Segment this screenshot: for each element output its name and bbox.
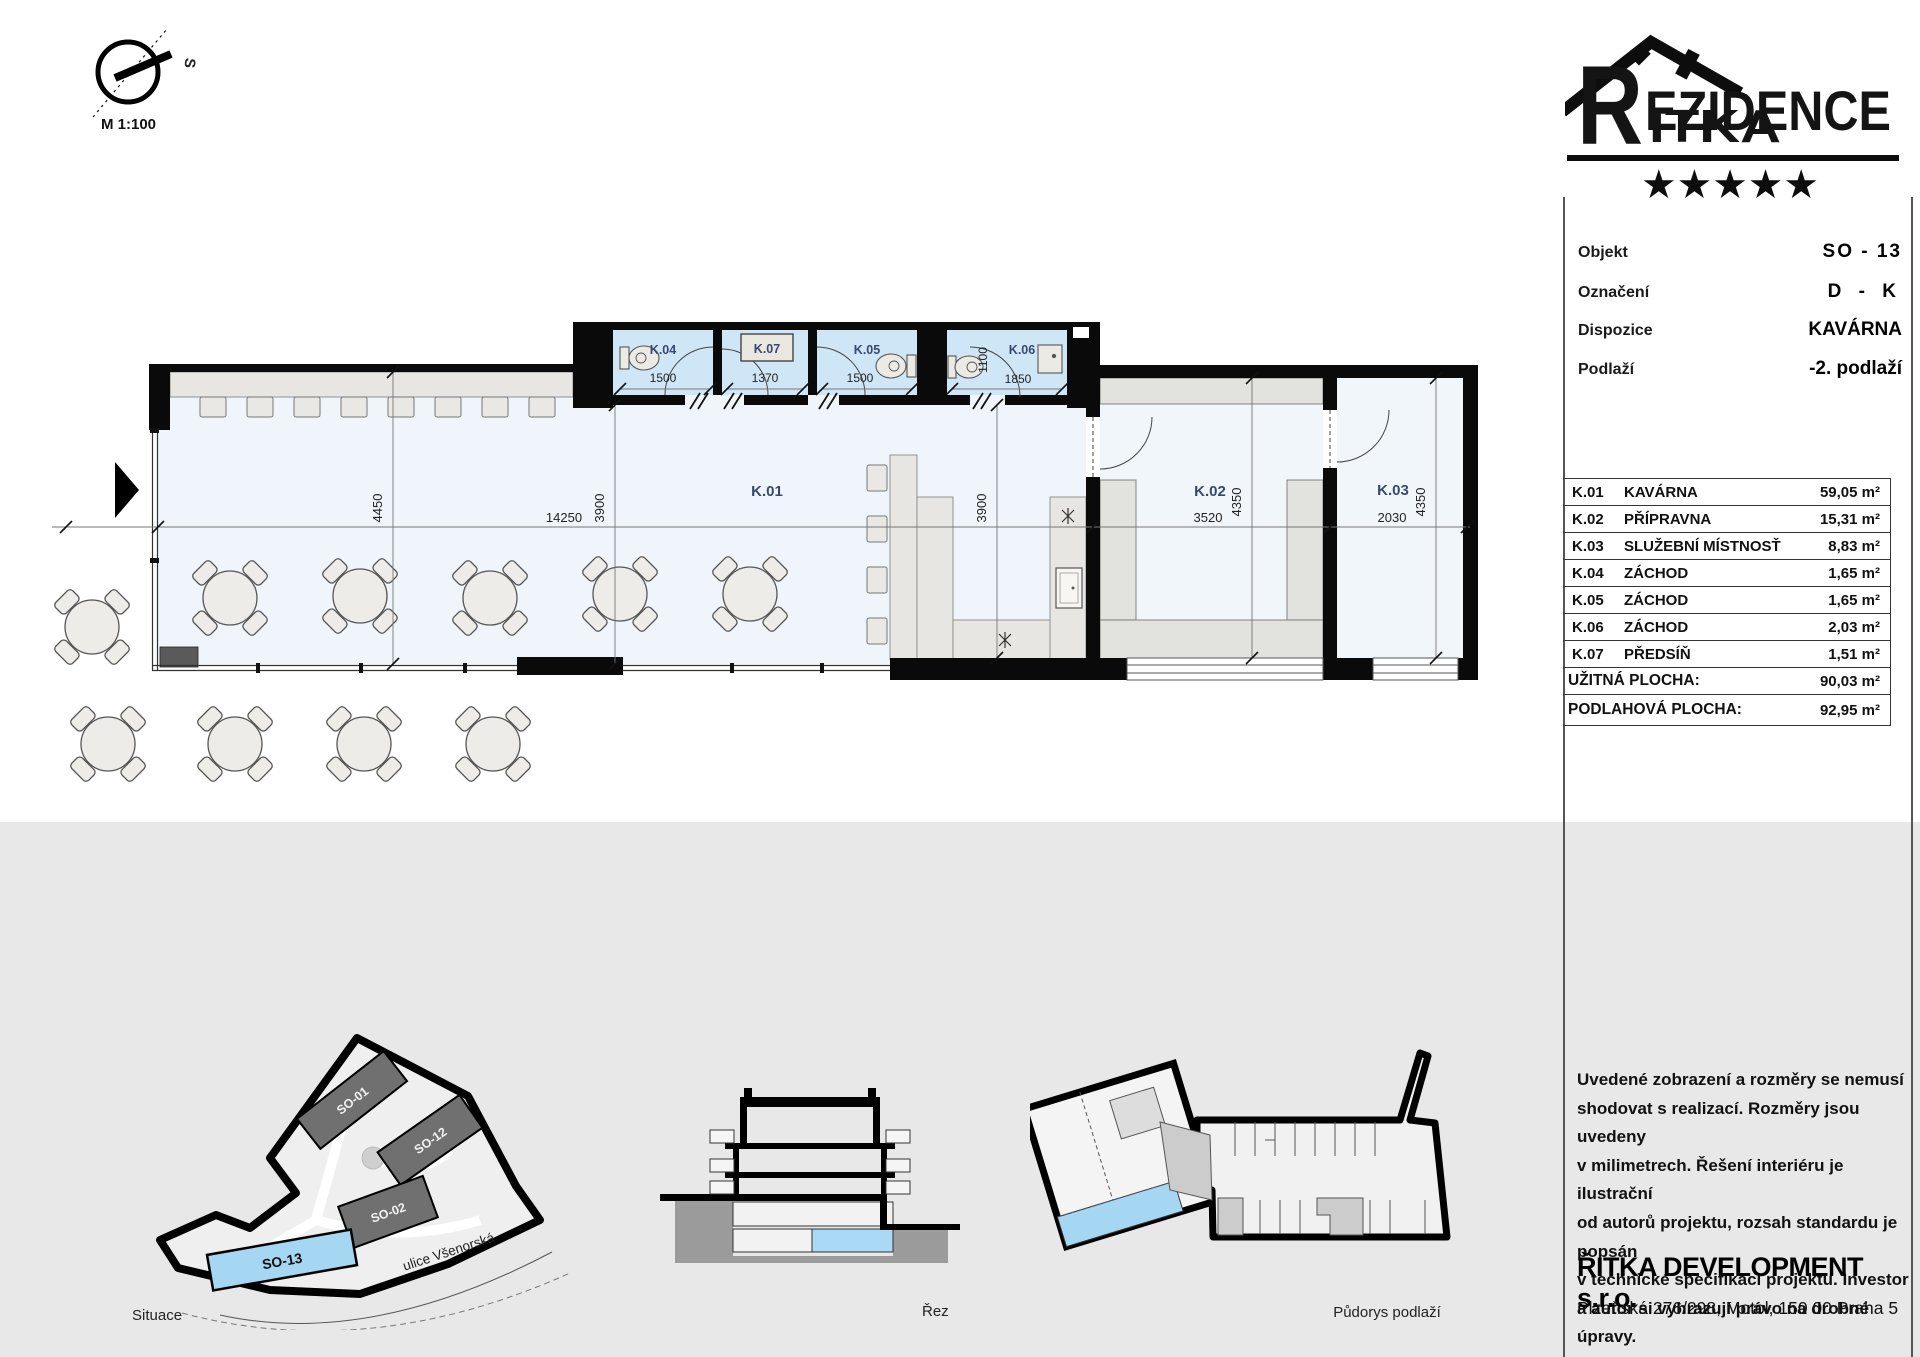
info-value: SO - 13	[1823, 241, 1902, 263]
dim-k07: 1370	[752, 371, 779, 385]
disclaimer-line: Uvedené zobrazení a rozměry se nemusí	[1577, 1066, 1911, 1095]
room-code: K.07	[1563, 646, 1624, 663]
room-area: 1,51 m²	[1828, 646, 1890, 663]
table-row: K.02 PŘÍPRAVNA 15,31 m²	[1563, 506, 1890, 533]
total-label: PODLAHOVÁ PLOCHA:	[1563, 701, 1820, 719]
dim-14250: 14250	[546, 510, 582, 525]
company-address: Plzeňská 276/298, Motol, 150 00 Praha 5	[1577, 1298, 1917, 1319]
north-compass: S M 1:100	[85, 25, 215, 160]
dim-2030: 2030	[1378, 510, 1407, 525]
info-row-podlazi: Podlaží -2. podlaží	[1578, 358, 1902, 384]
room-code: K.04	[1563, 565, 1624, 582]
total-label: UŽITNÁ PLOCHA:	[1563, 672, 1820, 690]
level-plan-label: Půdorys podlaží	[1333, 1304, 1441, 1321]
table-row: K.06 ZÁCHOD 2,03 m²	[1563, 614, 1890, 641]
info-value: -2. podlaží	[1809, 358, 1902, 380]
total-value: 92,95 m²	[1820, 702, 1890, 719]
dim-k06: 1850	[1005, 372, 1032, 386]
room-code: K.03	[1563, 538, 1624, 555]
north-label: S	[180, 57, 198, 69]
logo-underline	[1567, 155, 1899, 161]
table-row: K.01 KAVÁRNA 59,05 m²	[1563, 479, 1890, 506]
logo-word-bottom: ITKA	[1649, 100, 1781, 152]
info-row-dispozice: Dispozice KAVÁRNA	[1578, 319, 1902, 345]
info-value: D - K	[1828, 281, 1902, 303]
room-area: 1,65 m²	[1828, 592, 1890, 609]
table-row: K.07 PŘEDSÍŇ 1,51 m²	[1563, 641, 1890, 668]
section-drawing: Řez	[640, 1050, 980, 1330]
info-label: Podlaží	[1578, 361, 1634, 379]
scale-label: M 1:100	[101, 116, 156, 133]
room-name: ZÁCHOD	[1624, 592, 1828, 609]
room-label-k02: K.02	[1194, 483, 1226, 500]
room-label-k07: K.07	[754, 342, 780, 356]
room-name: PŘÍPRAVNA	[1624, 511, 1820, 528]
room-code: K.05	[1563, 592, 1624, 609]
dim-4350-a: 4350	[1229, 488, 1244, 517]
room-label-k03: K.03	[1377, 482, 1409, 499]
windows	[1127, 658, 1458, 680]
room-name: PŘEDSÍŇ	[1624, 646, 1828, 663]
entrance-arrow-icon	[115, 462, 139, 518]
table-total-row: PODLAHOVÁ PLOCHA: 92,95 m²	[1563, 695, 1890, 726]
room-area: 8,83 m²	[1828, 538, 1890, 555]
dim-3900-b: 3900	[974, 494, 989, 523]
dim-k06-v: 1100	[976, 347, 990, 373]
highlighted-cafe-level	[812, 1229, 893, 1252]
ground-left	[675, 1197, 733, 1263]
level-plan: Půdorys podlaží	[1030, 1040, 1480, 1330]
info-label: Označení	[1578, 284, 1649, 302]
appliance	[1056, 568, 1082, 608]
section-label: Řez	[922, 1303, 949, 1320]
dim-3900: 3900	[592, 494, 607, 523]
room-name: KAVÁRNA	[1624, 484, 1820, 501]
room-name: ZÁCHOD	[1624, 565, 1828, 582]
dim-k05: 1500	[847, 371, 874, 385]
service-block	[160, 647, 198, 667]
disclaimer-line: shodovat s realizací. Rozměry jsou uvede…	[1577, 1095, 1911, 1152]
table-row: K.04 ZÁCHOD 1,65 m²	[1563, 560, 1890, 587]
shaft-notch	[1073, 327, 1089, 338]
sheet-right-border	[1911, 197, 1913, 1357]
table-row: K.03 SLUŽEBNÍ MÍSTNOSŤ 8,83 m²	[1563, 533, 1890, 560]
brand-logo: R EZIDENCE ITKA ★★★★★	[1565, 28, 1915, 210]
room-area: 59,05 m²	[1820, 484, 1890, 501]
table-total-row: UŽITNÁ PLOCHA: 90,03 m²	[1563, 668, 1890, 695]
dim-k04: 1500	[650, 371, 677, 385]
info-row-oznaceni: Označení D - K	[1578, 281, 1902, 307]
room-area-table: K.01 KAVÁRNA 59,05 m² K.02 PŘÍPRAVNA 15,…	[1563, 478, 1891, 726]
room-name: SLUŽEBNÍ MÍSTNOSŤ	[1624, 538, 1828, 555]
room-area: 1,65 m²	[1828, 565, 1890, 582]
parking-block	[1218, 1198, 1243, 1235]
drawing-sheet: S M 1:100	[0, 0, 1920, 1357]
room-label-k04: K.04	[650, 343, 676, 357]
room-name: ZÁCHOD	[1624, 619, 1828, 636]
room-label-k01: K.01	[751, 483, 783, 500]
info-label: Dispozice	[1578, 322, 1653, 340]
room-area: 2,03 m²	[1828, 619, 1890, 636]
info-value: KAVÁRNA	[1808, 319, 1902, 341]
site-plan: SO-01 SO-12 SO-02 SO-13 ulice Všenorská …	[120, 1030, 590, 1330]
dim-4450: 4450	[370, 494, 385, 523]
logo-initial: R	[1577, 43, 1643, 168]
room-label-k05: K.05	[854, 343, 880, 357]
info-label: Objekt	[1578, 244, 1628, 262]
room-label-k06: K.06	[1009, 343, 1035, 357]
dim-4350-b: 4350	[1413, 488, 1428, 517]
info-row-objekt: Objekt SO - 13	[1578, 241, 1902, 267]
panel-divider-line	[1563, 197, 1565, 1357]
north-arrow	[115, 54, 171, 78]
floor-plan: 4450 14250 3900 3900 3520 4350 2030 4350…	[30, 250, 1500, 795]
basement-level-1	[733, 1202, 893, 1226]
table-row: K.05 ZÁCHOD 1,65 m²	[1563, 587, 1890, 614]
room-area: 15,31 m²	[1820, 511, 1890, 528]
ground-bottom	[675, 1256, 948, 1263]
disclaimer-line: v milimetrech. Řešení interiéru je ilust…	[1577, 1152, 1911, 1209]
total-value: 90,03 m²	[1820, 673, 1890, 690]
five-stars-icon: ★★★★★	[1641, 163, 1819, 207]
room-code: K.06	[1563, 619, 1624, 636]
site-plan-label: Situace	[132, 1307, 182, 1324]
room-code: K.01	[1563, 484, 1624, 501]
dim-3520: 3520	[1194, 510, 1223, 525]
room-code: K.02	[1563, 511, 1624, 528]
